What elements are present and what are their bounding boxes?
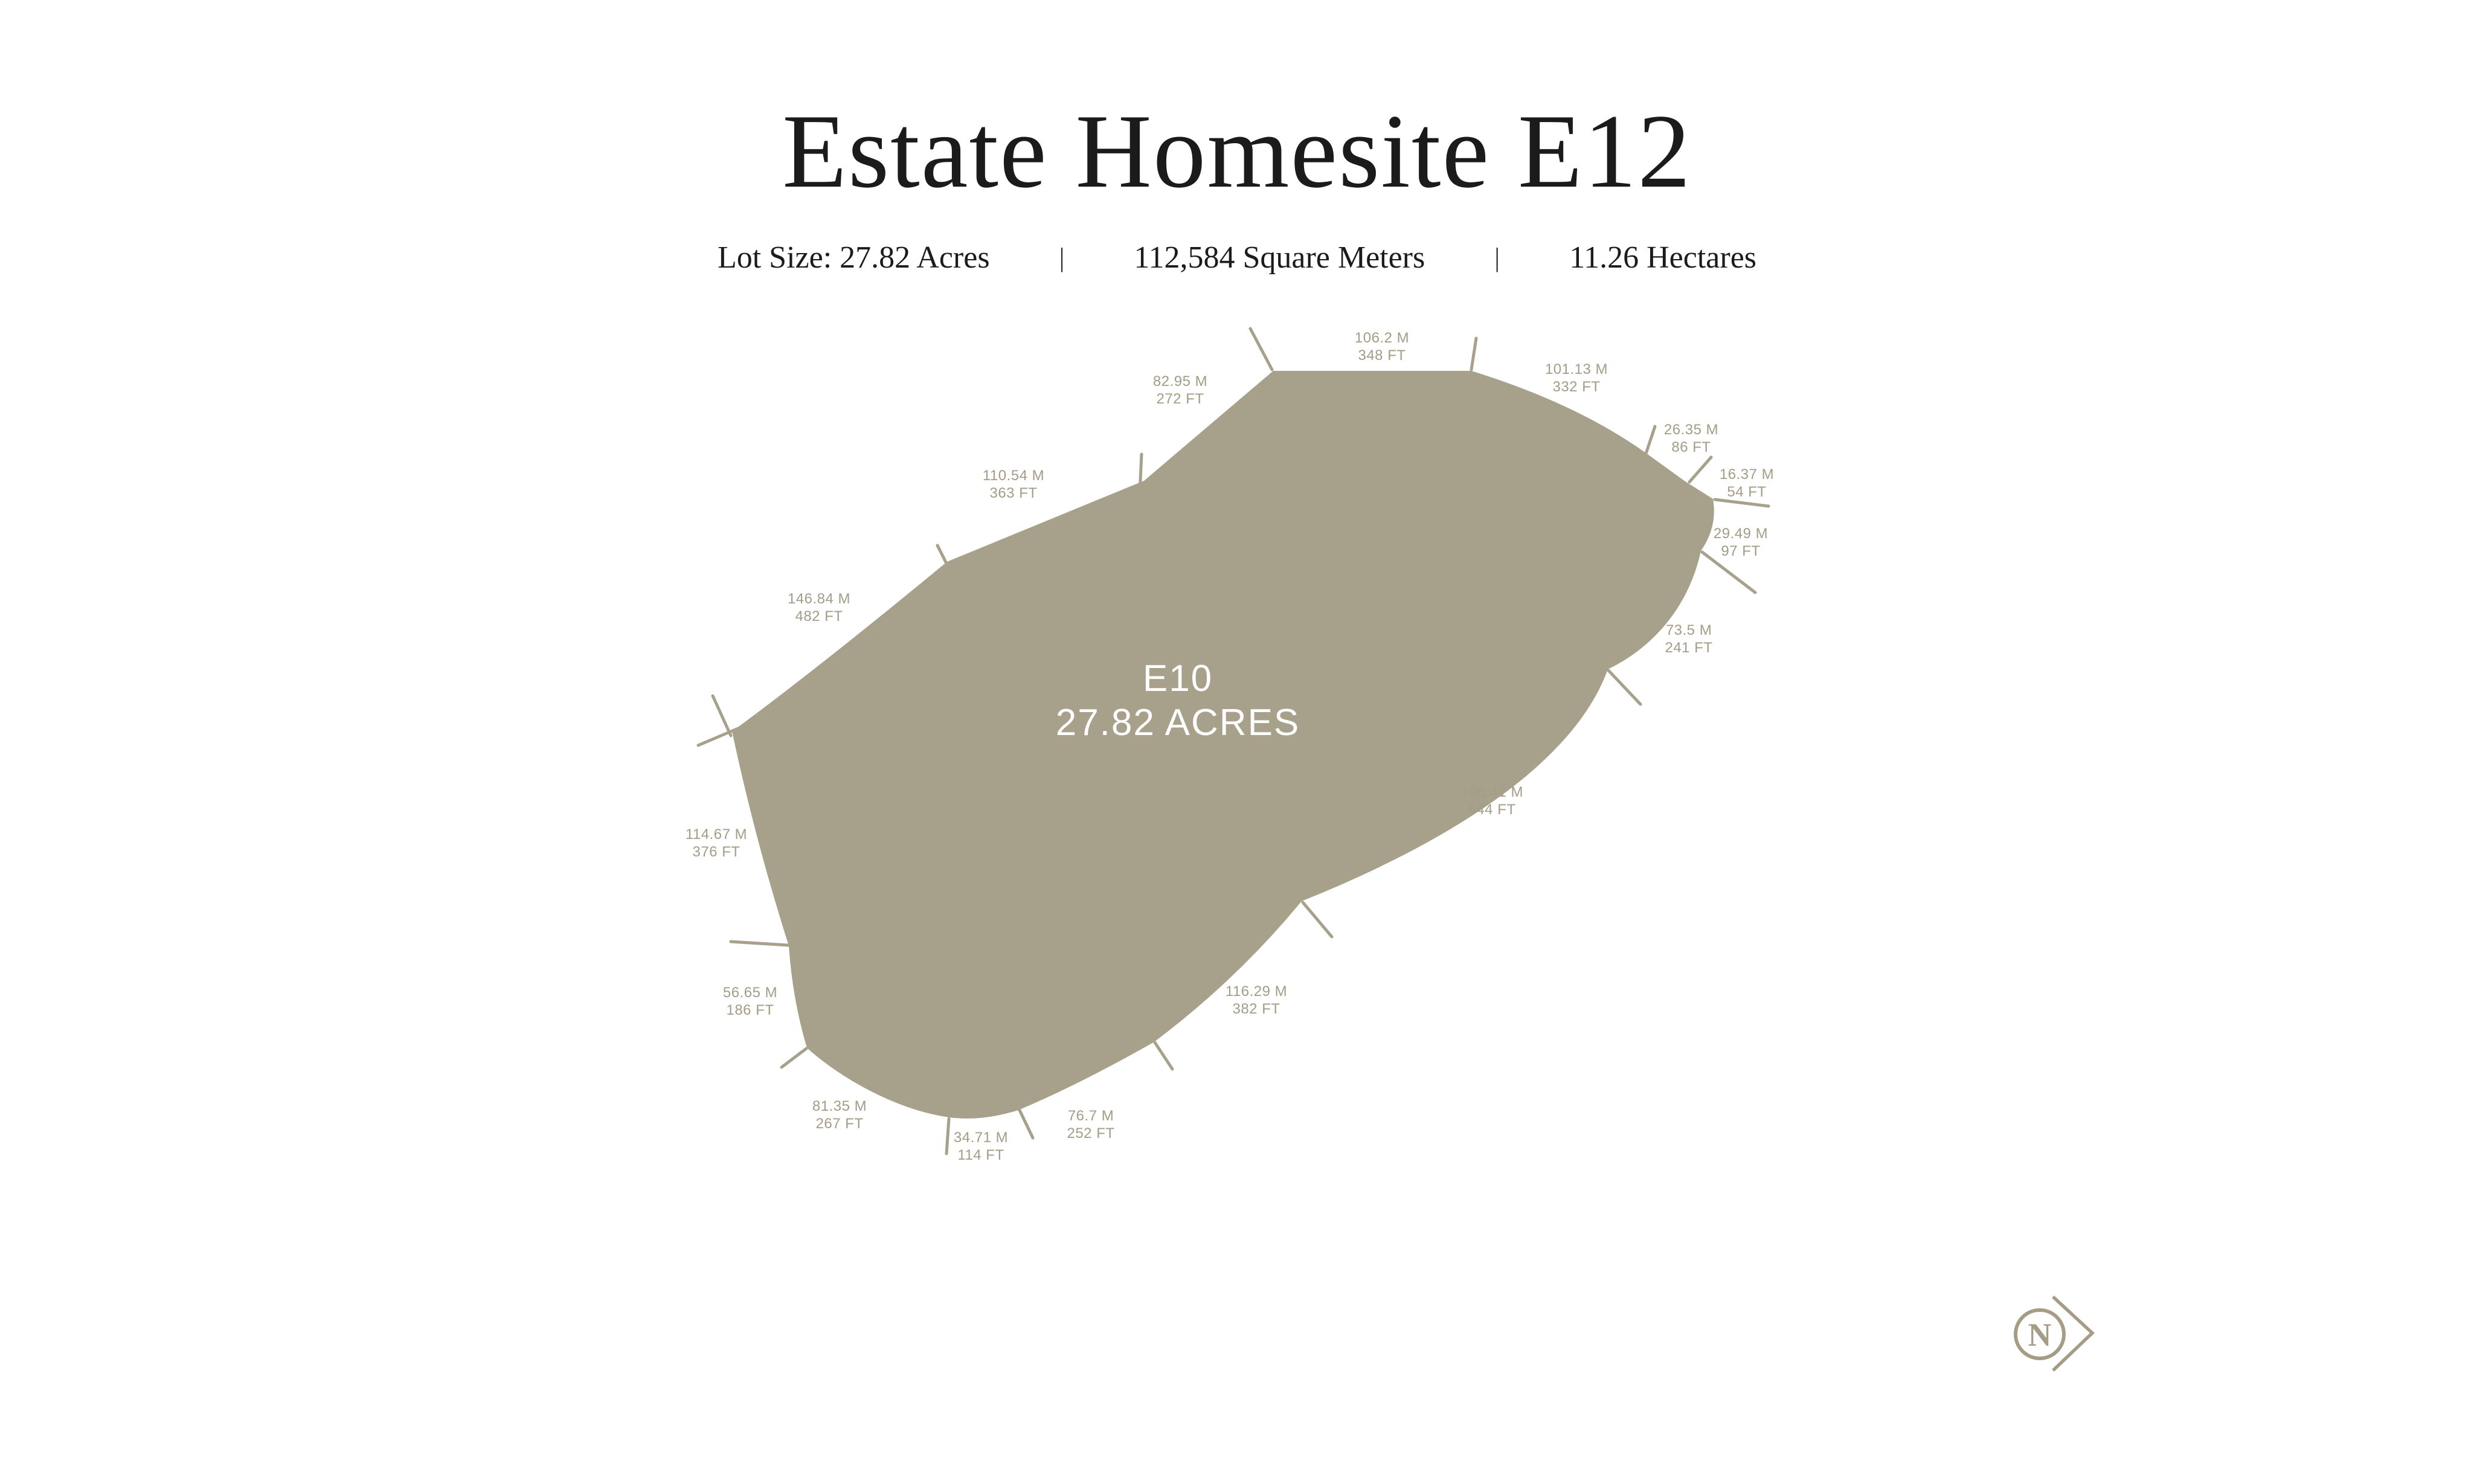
dimension-meters: 110.54 M (983, 467, 1044, 484)
dimension-feet: 54 FT (1727, 483, 1766, 501)
dimension-meters: 196.41 M (1460, 783, 1523, 801)
edge-dimension-label: 106.2 M 348 FT (1355, 329, 1409, 364)
dimension-feet: 348 FT (1358, 347, 1406, 364)
north-compass: N (2016, 1297, 2092, 1370)
dimension-meters: 56.65 M (723, 984, 777, 1001)
parcel-area: 27.82 ACRES (1056, 701, 1300, 745)
edge-dimension-label: 146.84 M 482 FT (788, 590, 850, 625)
dimension-meters: 114.67 M (686, 826, 747, 843)
dimension-meters: 34.71 M (954, 1129, 1008, 1146)
dimension-meters: 76.7 M (1068, 1107, 1114, 1125)
edge-dimension-label: 81.35 M 267 FT (812, 1097, 867, 1132)
dimension-feet: 86 FT (1671, 438, 1711, 456)
dimension-feet: 252 FT (1067, 1125, 1114, 1142)
boundary-tick (1250, 329, 1272, 370)
dimension-feet: 482 FT (795, 608, 843, 625)
dimension-feet: 382 FT (1232, 1000, 1280, 1018)
dimension-meters: 29.49 M (1714, 525, 1768, 542)
north-arrow-icon (2053, 1297, 2092, 1370)
dimension-feet: 241 FT (1665, 639, 1712, 657)
edge-dimension-label: 114.67 M 376 FT (686, 826, 747, 861)
dimension-meters: 82.95 M (1153, 373, 1207, 390)
boundary-tick (731, 942, 789, 945)
dimension-feet: 97 FT (1721, 542, 1760, 560)
dimension-meters: 81.35 M (812, 1097, 867, 1115)
dimension-feet: 186 FT (726, 1001, 774, 1019)
dimension-feet: 332 FT (1552, 378, 1600, 396)
boundary-tick (1689, 457, 1711, 482)
edge-dimension-label: 76.7 M 252 FT (1067, 1107, 1114, 1142)
edge-dimension-label: 110.54 M 363 FT (983, 467, 1044, 502)
dimension-meters: 26.35 M (1664, 421, 1718, 438)
boundary-tick (1155, 1042, 1172, 1069)
edge-dimension-label: 82.95 M 272 FT (1153, 373, 1207, 408)
plat-canvas: Estate Homesite E12 Lot Size: 27.82 Acre… (0, 0, 2474, 1484)
boundary-tick (1303, 902, 1332, 937)
edge-dimension-label: 56.65 M 186 FT (723, 984, 777, 1019)
dimension-meters: 116.29 M (1226, 983, 1287, 1000)
boundary-tick (1646, 426, 1655, 454)
dimension-feet: 114 FT (957, 1146, 1004, 1164)
edge-dimension-label: 196.41 M 644 FT (1460, 783, 1523, 818)
edge-dimension-label: 29.49 M 97 FT (1714, 525, 1768, 560)
boundary-tick (1471, 338, 1476, 370)
parcel-id: E10 (1143, 657, 1213, 701)
edge-dimension-label: 16.37 M 54 FT (1720, 466, 1774, 501)
dimension-feet: 363 FT (989, 484, 1037, 502)
boundary-tick (946, 1119, 949, 1154)
edge-dimension-label: 73.5 M 241 FT (1665, 622, 1712, 657)
dimension-feet: 376 FT (692, 843, 740, 861)
compass-north-letter: N (2028, 1317, 2052, 1353)
dimension-feet: 644 FT (1468, 801, 1515, 818)
boundary-tick (698, 728, 738, 745)
edge-dimension-label: 101.13 M 332 FT (1545, 361, 1608, 396)
edge-dimension-label: 116.29 M 382 FT (1226, 983, 1287, 1018)
dimension-meters: 146.84 M (788, 590, 850, 608)
boundary-tick (1608, 670, 1640, 704)
boundary-tick (782, 1049, 806, 1067)
dimension-meters: 101.13 M (1545, 361, 1608, 378)
boundary-tick (713, 696, 731, 736)
parcel-center-label: E10 27.82 ACRES (1056, 657, 1300, 745)
edge-dimension-label: 34.71 M 114 FT (954, 1129, 1008, 1164)
boundary-tick (1019, 1109, 1033, 1138)
edge-dimension-label: 26.35 M 86 FT (1664, 421, 1718, 456)
dimension-meters: 73.5 M (1666, 622, 1712, 639)
dimension-feet: 272 FT (1156, 390, 1204, 408)
dimension-feet: 267 FT (815, 1115, 863, 1132)
dimension-meters: 106.2 M (1355, 329, 1409, 347)
dimension-meters: 16.37 M (1720, 466, 1774, 483)
